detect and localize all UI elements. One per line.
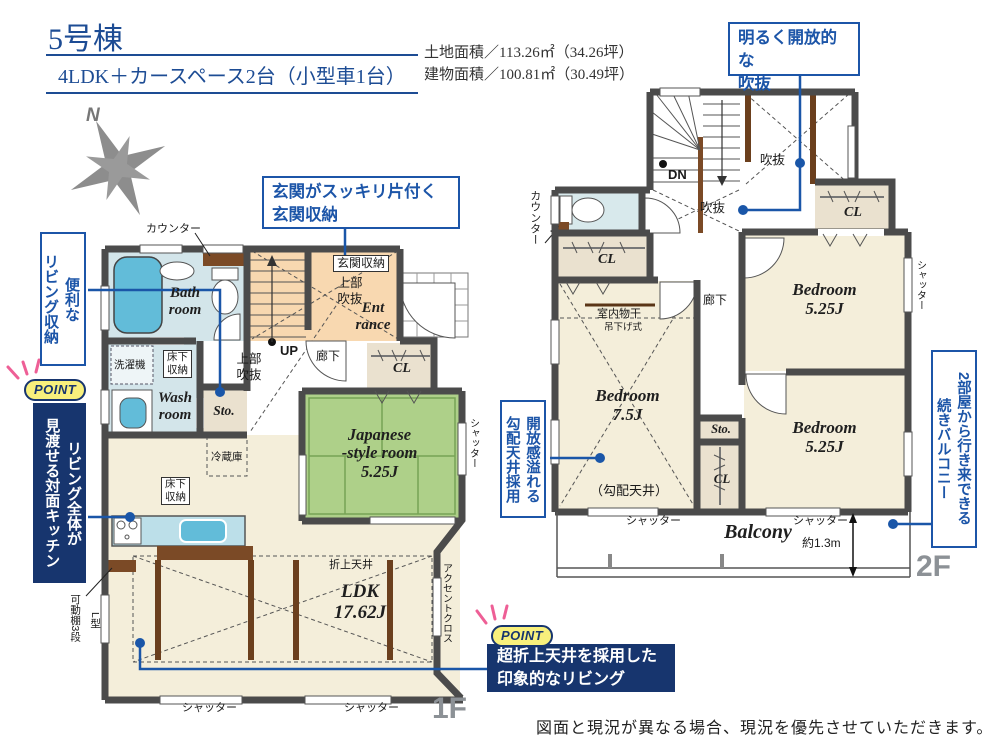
room-closet-1f: CL [389, 361, 415, 377]
room-closet-top: CL [840, 205, 866, 221]
floorplan-flyer: { "header": { "building": "5号棟", "plan":… [0, 0, 1000, 751]
land-area: 土地面積／113.26㎡（34.26坪） [424, 44, 633, 63]
page-title: 5号棟 [48, 14, 123, 58]
room-bedroom-b: Bedroom 5.25J [762, 418, 887, 456]
callout-balcony: 2部屋から行き来できる 続きバルコニー [931, 350, 977, 548]
callout-kitchen-point: リビング全体が 見渡せる対面キッチン [33, 403, 86, 583]
callout-void: 明るく開放的な 吹抜 [728, 22, 860, 76]
room-closet-left: CL [594, 252, 620, 268]
label-void-a: 吹抜 [760, 153, 785, 169]
label-hallway-1f: 廊下 [316, 349, 340, 364]
label-accent-cloth: アクセントクロス [439, 563, 452, 643]
label-folded-ceiling: 折上天井 [329, 559, 373, 573]
room-storage-2f: Sto. [706, 422, 736, 436]
callout-entrance-storage: 玄関がスッキリ片付く 玄関収納 [262, 176, 460, 229]
room-washroom: Wash room [140, 390, 210, 424]
room-bath: Bath room [150, 285, 220, 319]
room-storage-1f: Sto. [206, 403, 242, 418]
point-badge-ceiling: POINT [491, 625, 553, 647]
footer-disclaimer: 図面と現況が異なる場合、現況を優先させていただきます。 [536, 714, 993, 738]
label-floor-storage-kitchen: 床下 収納 [161, 477, 190, 505]
room-entrance: Ent rance [348, 300, 398, 334]
callout-sloped-ceiling: 開放感溢れる 勾配天井採用 [500, 400, 546, 518]
compass-n-label: N [86, 104, 100, 128]
label-shutter-side-2f: シャッター [913, 260, 926, 310]
label-sloped-note: （勾配天井） [590, 483, 668, 499]
label-dn: DN [668, 167, 687, 183]
label-counter-1f: カウンター [146, 223, 201, 237]
callout-living-storage: 便利な リビング収納 [40, 232, 86, 366]
room-balcony: Balcony [713, 521, 803, 543]
label-hallway-2f: 廊下 [703, 293, 727, 308]
label-balcony-depth: 約1.3m [802, 536, 841, 551]
compass-icon [49, 99, 187, 237]
label-hanging: 吊下げ式 [604, 322, 642, 334]
point-badge-kitchen: POINT [24, 379, 86, 401]
label-counter-2f: カウンター [527, 190, 541, 245]
room-closet-mid: CL [710, 472, 734, 487]
room-bedroom-a: Bedroom 5.25J [762, 280, 887, 318]
label-washer: 洗濯機 [114, 359, 146, 372]
room-ldk: LDK 17.62J [305, 581, 415, 624]
floor-label-1f: 1F [432, 692, 467, 726]
label-shutter-side-1f: シャッター [466, 418, 479, 468]
label-shutter-1f-a: シャッター [182, 702, 237, 716]
room-japanese: Japanese -style room 5.25J [312, 426, 447, 481]
label-upper-void-hall: 上部 吹抜 [231, 352, 267, 383]
title-rule-bottom [46, 92, 418, 94]
label-up: UP [280, 343, 298, 359]
building-area: 建物面積／100.81㎡（30.49坪） [424, 66, 634, 85]
label-entrance-storage: 玄関収納 [333, 255, 389, 272]
label-shutter-2f-a: シャッター [626, 515, 681, 529]
label-movable-shelf: 可動棚3段 [68, 594, 81, 642]
label-shutter-1f-b: シャッター [344, 702, 399, 716]
label-indoor-laundry: 室内物干 [597, 308, 641, 322]
label-fridge: 冷蔵庫 [211, 451, 243, 464]
stairs-2f [652, 92, 816, 233]
label-floor-storage-wash: 床下 収納 [163, 350, 192, 378]
room-bedroom-75: Bedroom 7.5J [565, 386, 690, 424]
label-l-shape: L型 [88, 612, 101, 628]
plan-summary: 4LDK＋カースペース2台（小型車1台） [58, 60, 406, 89]
title-rule-top [46, 54, 418, 56]
label-void-b: 吹抜 [700, 201, 725, 217]
callout-ceiling-point: 超折上天井を採用した 印象的なリビング [487, 644, 675, 692]
floor-label-2f: 2F [916, 550, 951, 584]
